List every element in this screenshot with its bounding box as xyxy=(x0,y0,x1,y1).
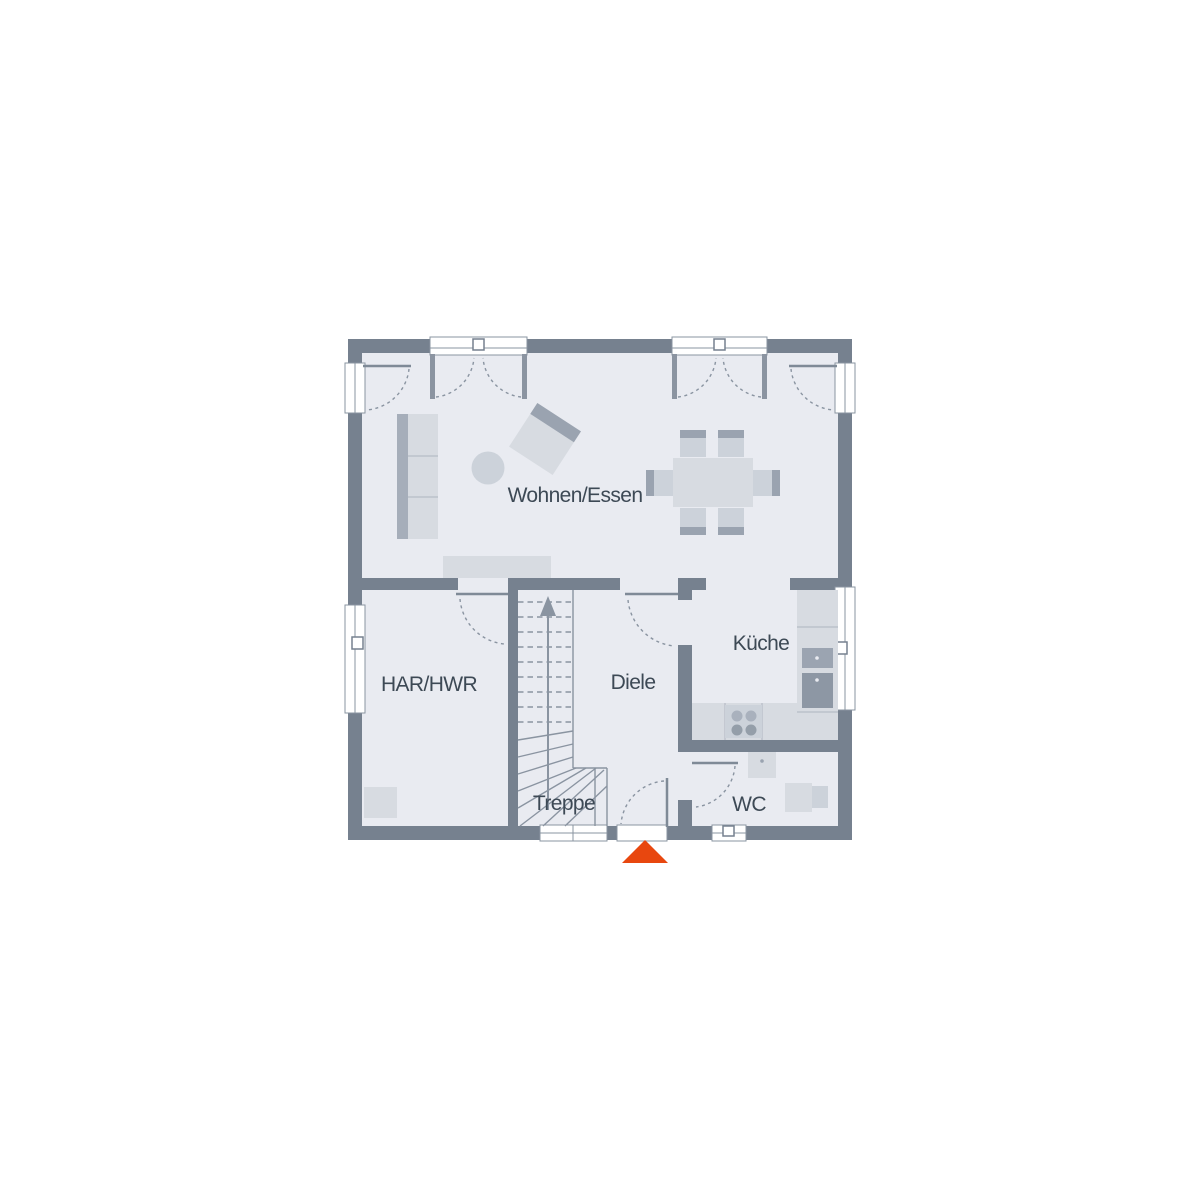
room-label-wc: WC xyxy=(732,793,766,816)
sideboard-icon xyxy=(443,556,551,578)
door-handle-icon xyxy=(473,339,484,350)
room-label-treppe: Treppe xyxy=(533,792,595,815)
dining-chair-icon xyxy=(718,508,744,535)
door-leaf-post xyxy=(762,354,767,399)
dining-chair-icon xyxy=(680,430,706,457)
room-label-diele: Diele xyxy=(611,671,656,694)
dining-chair-icon xyxy=(753,470,780,496)
door-handle-icon xyxy=(714,339,725,350)
door-leaf-post xyxy=(522,354,527,399)
window-handle-icon xyxy=(723,826,734,836)
door-leaf-post xyxy=(430,354,435,399)
cooktop-burners-icon xyxy=(725,705,762,738)
dining-table-icon xyxy=(673,458,753,507)
wall-wc-pier xyxy=(678,800,692,826)
entrance-arrow-icon xyxy=(622,840,668,863)
door-leaf-post xyxy=(672,354,677,399)
utility-appliance-icon xyxy=(364,787,397,818)
wall-kitchen-wc xyxy=(678,740,852,752)
window-stair xyxy=(540,825,607,841)
sofa-icon xyxy=(397,414,438,539)
room-label-kueche: Küche xyxy=(733,632,790,655)
wall-har-north xyxy=(362,578,458,590)
dining-chair-icon xyxy=(646,470,673,496)
dining-chair-icon xyxy=(718,430,744,457)
wall-stair-north xyxy=(518,578,620,590)
window-wc xyxy=(712,825,746,841)
floorplan-canvas: Wohnen/Essen HAR/HWR Diele Küche Treppe … xyxy=(0,0,1200,1200)
room-label-wohnen-essen: Wohnen/Essen xyxy=(508,484,643,507)
wall-diele-kitchen xyxy=(678,645,692,750)
window-handle-icon xyxy=(352,637,363,649)
coffee-table-round-icon xyxy=(472,452,505,485)
window-har xyxy=(345,605,365,713)
wall-pier-kitchen xyxy=(678,578,706,590)
wc-toilet-icon xyxy=(785,783,828,812)
wc-sink-icon xyxy=(748,752,776,778)
room-label-har-hwr: HAR/HWR xyxy=(381,673,478,696)
dining-chair-icon xyxy=(680,508,706,535)
floorplan-drawing: Wohnen/Essen HAR/HWR Diele Küche Treppe … xyxy=(0,0,1200,1200)
wall-stair-west xyxy=(508,590,518,826)
wall-pier-kitchen-lip xyxy=(678,590,692,600)
oven-icon xyxy=(802,673,833,708)
